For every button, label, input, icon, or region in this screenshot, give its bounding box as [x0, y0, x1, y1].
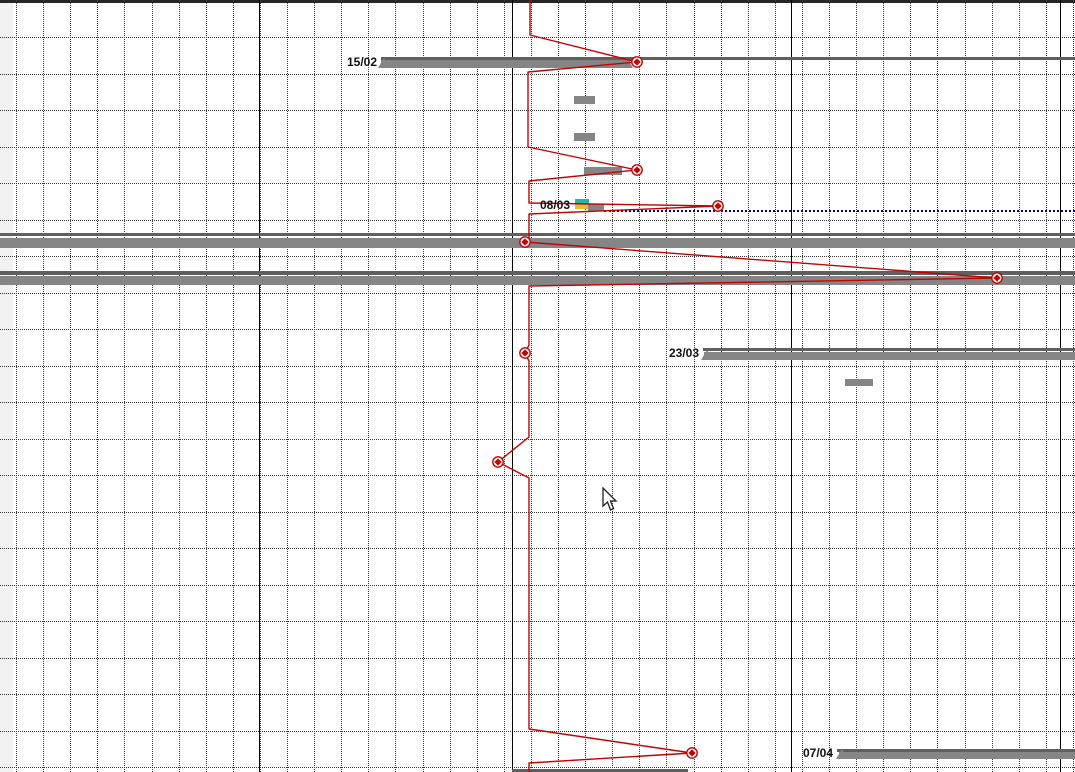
milestone-date-label: 23/03: [669, 346, 699, 360]
grid-line-vertical: [1019, 0, 1020, 772]
grid-line-vertical: [558, 0, 559, 772]
summary-bar-15-02[interactable]: [381, 60, 630, 68]
grid-line-vertical: [639, 0, 640, 772]
grid-line-horizontal: [0, 183, 1075, 184]
grid-line-vertical: [70, 0, 71, 772]
task-bar-08-03[interactable]: [588, 204, 604, 211]
grid-line-vertical: [937, 0, 938, 772]
progress-line: [0, 0, 1075, 772]
progress-marker-diamond: [521, 349, 528, 356]
task-bar-small-2[interactable]: [574, 133, 595, 141]
progress-marker-diamond: [688, 749, 695, 756]
summary-thinline-row-a[interactable]: [0, 233, 1075, 236]
grid-line-vertical: [206, 0, 207, 772]
summary-bar-15-02-end-triangle: [621, 58, 633, 68]
grid-line-vertical: [504, 0, 505, 772]
grid-line-vertical: [992, 0, 993, 772]
grid-line-vertical: [856, 0, 857, 772]
summary-bar-15-02-end-triangle: [378, 58, 390, 68]
grid-line-horizontal: [0, 293, 1075, 294]
summary-thinline-23-03[interactable]: [703, 348, 1075, 351]
grid-line-vertical: [423, 0, 424, 772]
grid-line-horizontal: [0, 694, 1075, 695]
grid-line-vertical: [287, 0, 288, 772]
calendar-major-line: [1060, 0, 1061, 772]
grid-line-horizontal: [0, 585, 1075, 586]
milestone-date-label: 15/02: [347, 55, 377, 69]
grid-line-vertical: [721, 0, 722, 772]
grid-line-horizontal: [0, 439, 1075, 440]
grid-line-horizontal: [0, 366, 1075, 367]
grid-line-horizontal: [0, 110, 1075, 111]
task-bar-small-3[interactable]: [584, 167, 622, 175]
gantt-chart-area[interactable]: 15/02 08/03 23/03 07/04: [0, 0, 1075, 772]
summary-bar-row-b[interactable]: [0, 276, 1075, 285]
summary-bar-23-03[interactable]: [704, 352, 1075, 360]
grid-line-vertical: [43, 0, 44, 772]
grid-line-vertical: [152, 0, 153, 772]
grid-line-vertical: [775, 0, 776, 772]
summary-bar-07-04[interactable]: [839, 752, 1075, 759]
grid-line-vertical: [1073, 0, 1074, 772]
grid-line-horizontal: [0, 658, 1075, 659]
task-bar-small-4[interactable]: [845, 379, 873, 386]
grid-line-vertical: [829, 0, 830, 772]
grid-line-vertical: [531, 0, 532, 772]
grid-line-horizontal: [0, 74, 1075, 75]
calendar-major-line: [259, 0, 260, 772]
progress-marker-diamond: [494, 458, 501, 465]
grid-line-vertical: [233, 0, 234, 772]
grid-line-vertical: [585, 0, 586, 772]
grid-line-horizontal: [0, 256, 1075, 257]
progress-marker[interactable]: [687, 748, 697, 758]
grid-line-vertical: [260, 0, 261, 772]
grid-line-vertical: [450, 0, 451, 772]
summary-bar-23-03-end-triangle: [701, 350, 713, 360]
grid-line-vertical: [124, 0, 125, 772]
grid-line-horizontal: [0, 402, 1075, 403]
grid-line-horizontal: [0, 621, 1075, 622]
summary-thinline-row-b[interactable]: [0, 271, 1075, 275]
pane-top-edge: [0, 0, 1075, 3]
grid-line-horizontal: [0, 147, 1075, 148]
grid-line-vertical: [97, 0, 98, 772]
grid-line-horizontal: [0, 475, 1075, 476]
grid-line-vertical: [477, 0, 478, 772]
grid-line-vertical: [179, 0, 180, 772]
grid-line-horizontal: [0, 548, 1075, 549]
grid-line-horizontal: [0, 220, 1075, 221]
stripe-yellow-08-03[interactable]: [575, 204, 589, 209]
calendar-major-line: [791, 0, 792, 772]
grid-line-vertical: [314, 0, 315, 772]
grid-line-horizontal: [0, 329, 1075, 330]
grid-line-vertical: [802, 0, 803, 772]
grid-line-vertical: [341, 0, 342, 772]
grid-line-vertical: [694, 0, 695, 772]
grid-line-horizontal: [0, 37, 1075, 38]
calendar-major-line: [512, 0, 513, 772]
progress-marker[interactable]: [520, 348, 530, 358]
summary-bar-07-04-end-triangle: [836, 749, 848, 759]
mouse-cursor: [602, 487, 620, 513]
task-split-dotted-line: [604, 210, 1075, 212]
milestone-date-label: 08/03: [540, 198, 570, 212]
grid-line-horizontal: [0, 512, 1075, 513]
milestone-date-label: 07/04: [803, 746, 833, 760]
clipped-bar-bottom[interactable]: [512, 769, 688, 772]
grid-line-horizontal: [0, 731, 1075, 732]
grid-line-vertical: [1046, 0, 1047, 772]
grid-line-vertical: [883, 0, 884, 772]
progress-marker[interactable]: [493, 457, 503, 467]
grid-line-vertical: [395, 0, 396, 772]
progress-marker[interactable]: [632, 165, 642, 175]
summary-bar-row-a[interactable]: [0, 238, 1075, 248]
grid-line-vertical: [666, 0, 667, 772]
task-bar-small-1[interactable]: [574, 96, 595, 104]
grid-line-vertical: [368, 0, 369, 772]
grid-line-vertical: [16, 0, 17, 772]
grid-line-vertical: [965, 0, 966, 772]
grid-line-vertical: [910, 0, 911, 772]
grid-line-vertical: [748, 0, 749, 772]
grid-line-vertical: [612, 0, 613, 772]
